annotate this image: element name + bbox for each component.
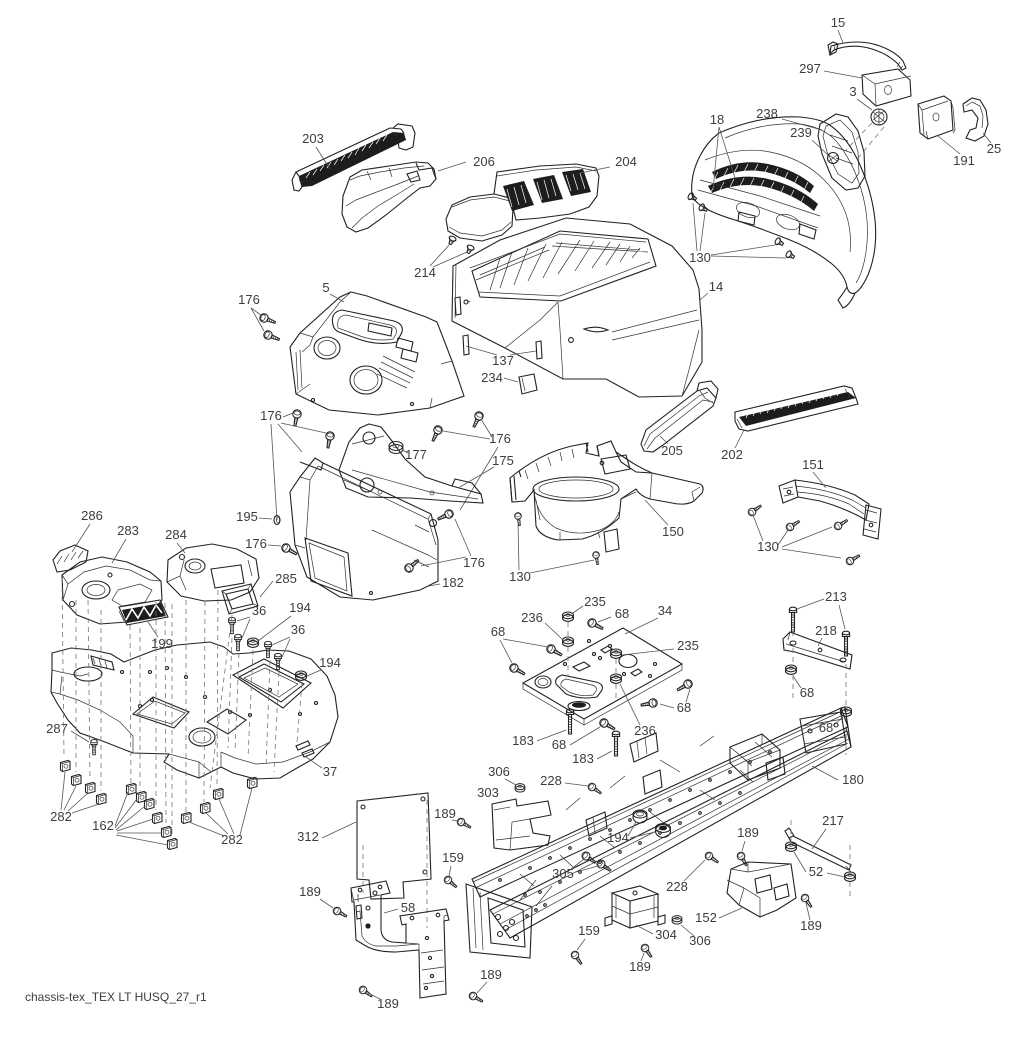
svg-text:203: 203 (302, 131, 324, 146)
svg-text:162: 162 (92, 818, 114, 833)
svg-text:304: 304 (655, 927, 677, 942)
svg-text:195: 195 (236, 509, 258, 524)
svg-text:chassis-tex_TEX LT HUSQ_27_r1: chassis-tex_TEX LT HUSQ_27_r1 (25, 990, 207, 1004)
svg-text:37: 37 (323, 764, 337, 779)
svg-text:52: 52 (809, 864, 823, 879)
svg-text:3: 3 (849, 84, 856, 99)
svg-text:58: 58 (401, 900, 415, 915)
svg-text:312: 312 (297, 829, 319, 844)
svg-text:36: 36 (291, 622, 305, 637)
svg-text:176: 176 (489, 431, 511, 446)
svg-text:176: 176 (463, 555, 485, 570)
svg-text:189: 189 (434, 806, 456, 821)
svg-text:282: 282 (221, 832, 243, 847)
svg-text:176: 176 (238, 292, 260, 307)
svg-text:284: 284 (165, 527, 187, 542)
svg-text:189: 189 (480, 967, 502, 982)
svg-text:14: 14 (709, 279, 723, 294)
svg-text:282: 282 (50, 809, 72, 824)
svg-text:239: 239 (790, 125, 812, 140)
svg-text:194: 194 (319, 655, 341, 670)
svg-text:34: 34 (658, 603, 672, 618)
svg-text:130: 130 (689, 250, 711, 265)
svg-text:68: 68 (677, 700, 691, 715)
svg-text:189: 189 (800, 918, 822, 933)
svg-text:234: 234 (481, 370, 503, 385)
svg-text:159: 159 (578, 923, 600, 938)
svg-text:297: 297 (799, 61, 821, 76)
svg-text:130: 130 (757, 539, 779, 554)
svg-text:189: 189 (377, 996, 399, 1011)
svg-text:194: 194 (607, 830, 629, 845)
svg-text:191: 191 (953, 153, 975, 168)
svg-text:159: 159 (442, 850, 464, 865)
svg-text:214: 214 (414, 265, 436, 280)
svg-text:228: 228 (540, 773, 562, 788)
svg-text:236: 236 (634, 723, 656, 738)
svg-text:130: 130 (509, 569, 531, 584)
svg-text:205: 205 (661, 443, 683, 458)
svg-text:235: 235 (677, 638, 699, 653)
svg-text:285: 285 (275, 571, 297, 586)
svg-text:202: 202 (721, 447, 743, 462)
svg-text:177: 177 (405, 447, 427, 462)
svg-text:68: 68 (491, 624, 505, 639)
svg-text:68: 68 (615, 606, 629, 621)
svg-text:283: 283 (117, 523, 139, 538)
svg-text:152: 152 (695, 910, 717, 925)
svg-text:213: 213 (825, 589, 847, 604)
svg-text:217: 217 (822, 813, 844, 828)
svg-text:305: 305 (552, 866, 574, 881)
svg-text:303: 303 (477, 785, 499, 800)
svg-text:189: 189 (737, 825, 759, 840)
svg-text:151: 151 (802, 457, 824, 472)
svg-text:228: 228 (666, 879, 688, 894)
svg-text:175: 175 (492, 453, 514, 468)
svg-text:194: 194 (289, 600, 311, 615)
svg-text:18: 18 (710, 112, 724, 127)
svg-text:182: 182 (442, 575, 464, 590)
svg-text:180: 180 (842, 772, 864, 787)
svg-text:25: 25 (987, 141, 1001, 156)
svg-text:189: 189 (299, 884, 321, 899)
svg-text:286: 286 (81, 508, 103, 523)
svg-text:5: 5 (322, 280, 329, 295)
svg-text:235: 235 (584, 594, 606, 609)
svg-text:206: 206 (473, 154, 495, 169)
svg-text:176: 176 (245, 536, 267, 551)
svg-text:68: 68 (800, 685, 814, 700)
svg-text:183: 183 (512, 733, 534, 748)
svg-text:68: 68 (552, 737, 566, 752)
svg-text:306: 306 (689, 933, 711, 948)
svg-text:189: 189 (629, 959, 651, 974)
svg-text:204: 204 (615, 154, 637, 169)
svg-text:176: 176 (260, 408, 282, 423)
svg-text:150: 150 (662, 524, 684, 539)
svg-text:287: 287 (46, 721, 68, 736)
svg-text:183: 183 (572, 751, 594, 766)
svg-text:218: 218 (815, 623, 837, 638)
svg-text:236: 236 (521, 610, 543, 625)
svg-text:15: 15 (831, 15, 845, 30)
svg-text:36: 36 (252, 603, 266, 618)
svg-text:306: 306 (488, 764, 510, 779)
